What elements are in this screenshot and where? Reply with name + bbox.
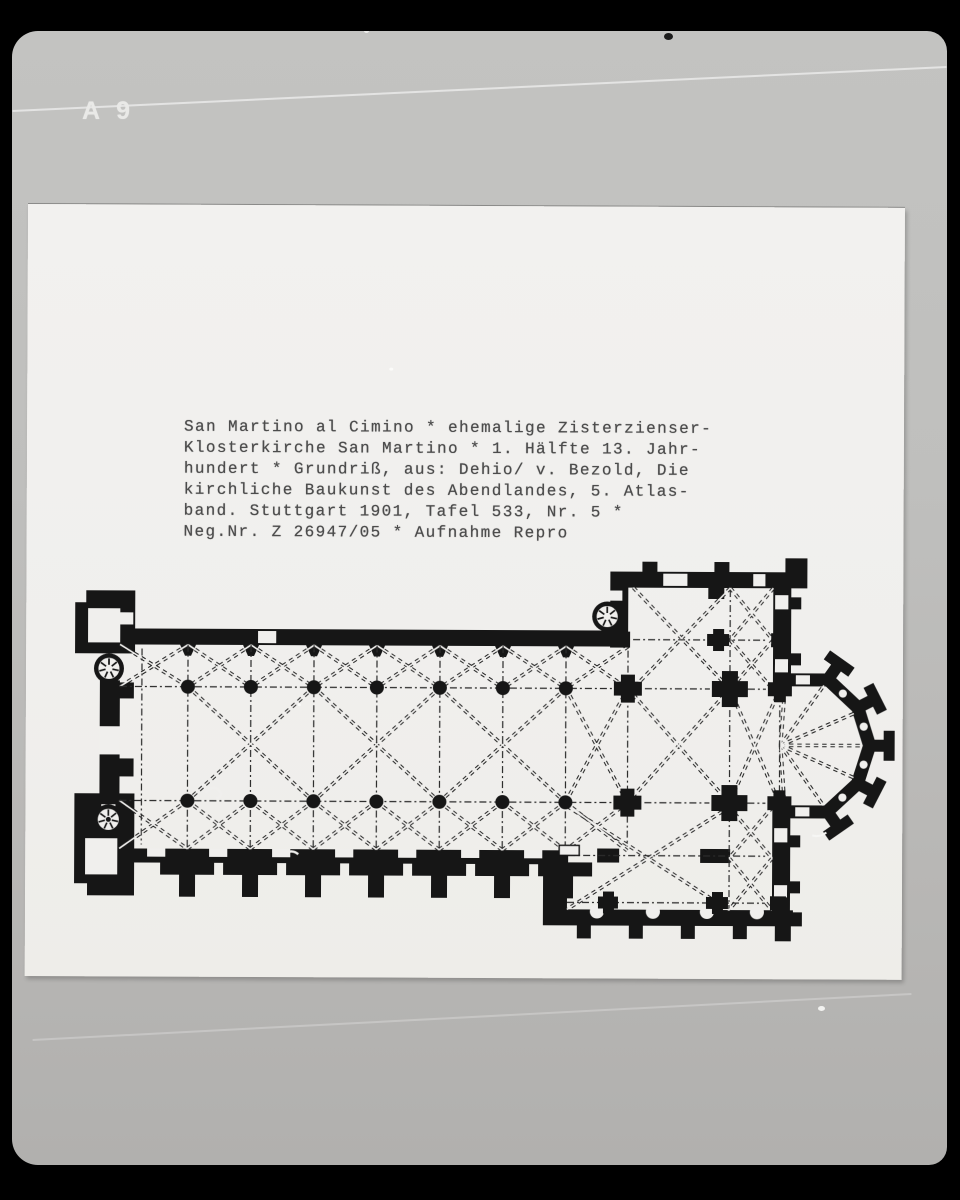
plan-walls bbox=[74, 555, 896, 942]
dust-speck bbox=[364, 31, 369, 33]
nave-south-wall bbox=[128, 848, 592, 898]
caption-line: band. Stuttgart 1901, Tafel 533, Nr. 5 * bbox=[184, 501, 712, 524]
caption-line: Klosterkirche San Martino * 1. Hälfte 13… bbox=[184, 438, 712, 461]
scratch-line-top bbox=[12, 66, 946, 112]
caption-line: Neg.Nr. Z 26947/05 * Aufnahme Repro bbox=[184, 522, 712, 545]
scan-background: A 9 San Martino al Cimino * ehemalige Zi… bbox=[0, 0, 960, 1200]
dust-speck bbox=[818, 1006, 825, 1011]
dust-speck bbox=[389, 368, 393, 371]
caption-line: San Martino al Cimino * ehemalige Zister… bbox=[184, 417, 712, 440]
north-transept bbox=[610, 558, 808, 696]
caption-line: kirchliche Baukunst des Abendlandes, 5. … bbox=[184, 480, 712, 503]
caption-block: San Martino al Cimino * ehemalige Zister… bbox=[184, 417, 713, 545]
archive-mat-card: A 9 San Martino al Cimino * ehemalige Zi… bbox=[12, 31, 947, 1165]
west-front bbox=[74, 590, 135, 895]
south-buttresses bbox=[160, 861, 592, 899]
photo-print: San Martino al Cimino * ehemalige Zister… bbox=[25, 204, 905, 980]
archive-shelf-label: A 9 bbox=[82, 99, 135, 124]
floor-plan bbox=[57, 552, 899, 946]
caption-line: hundert * Grundriß, aus: Dehio/ v. Bezol… bbox=[184, 459, 712, 482]
dust-speck bbox=[664, 33, 673, 40]
scratch-line-bottom bbox=[33, 993, 912, 1041]
